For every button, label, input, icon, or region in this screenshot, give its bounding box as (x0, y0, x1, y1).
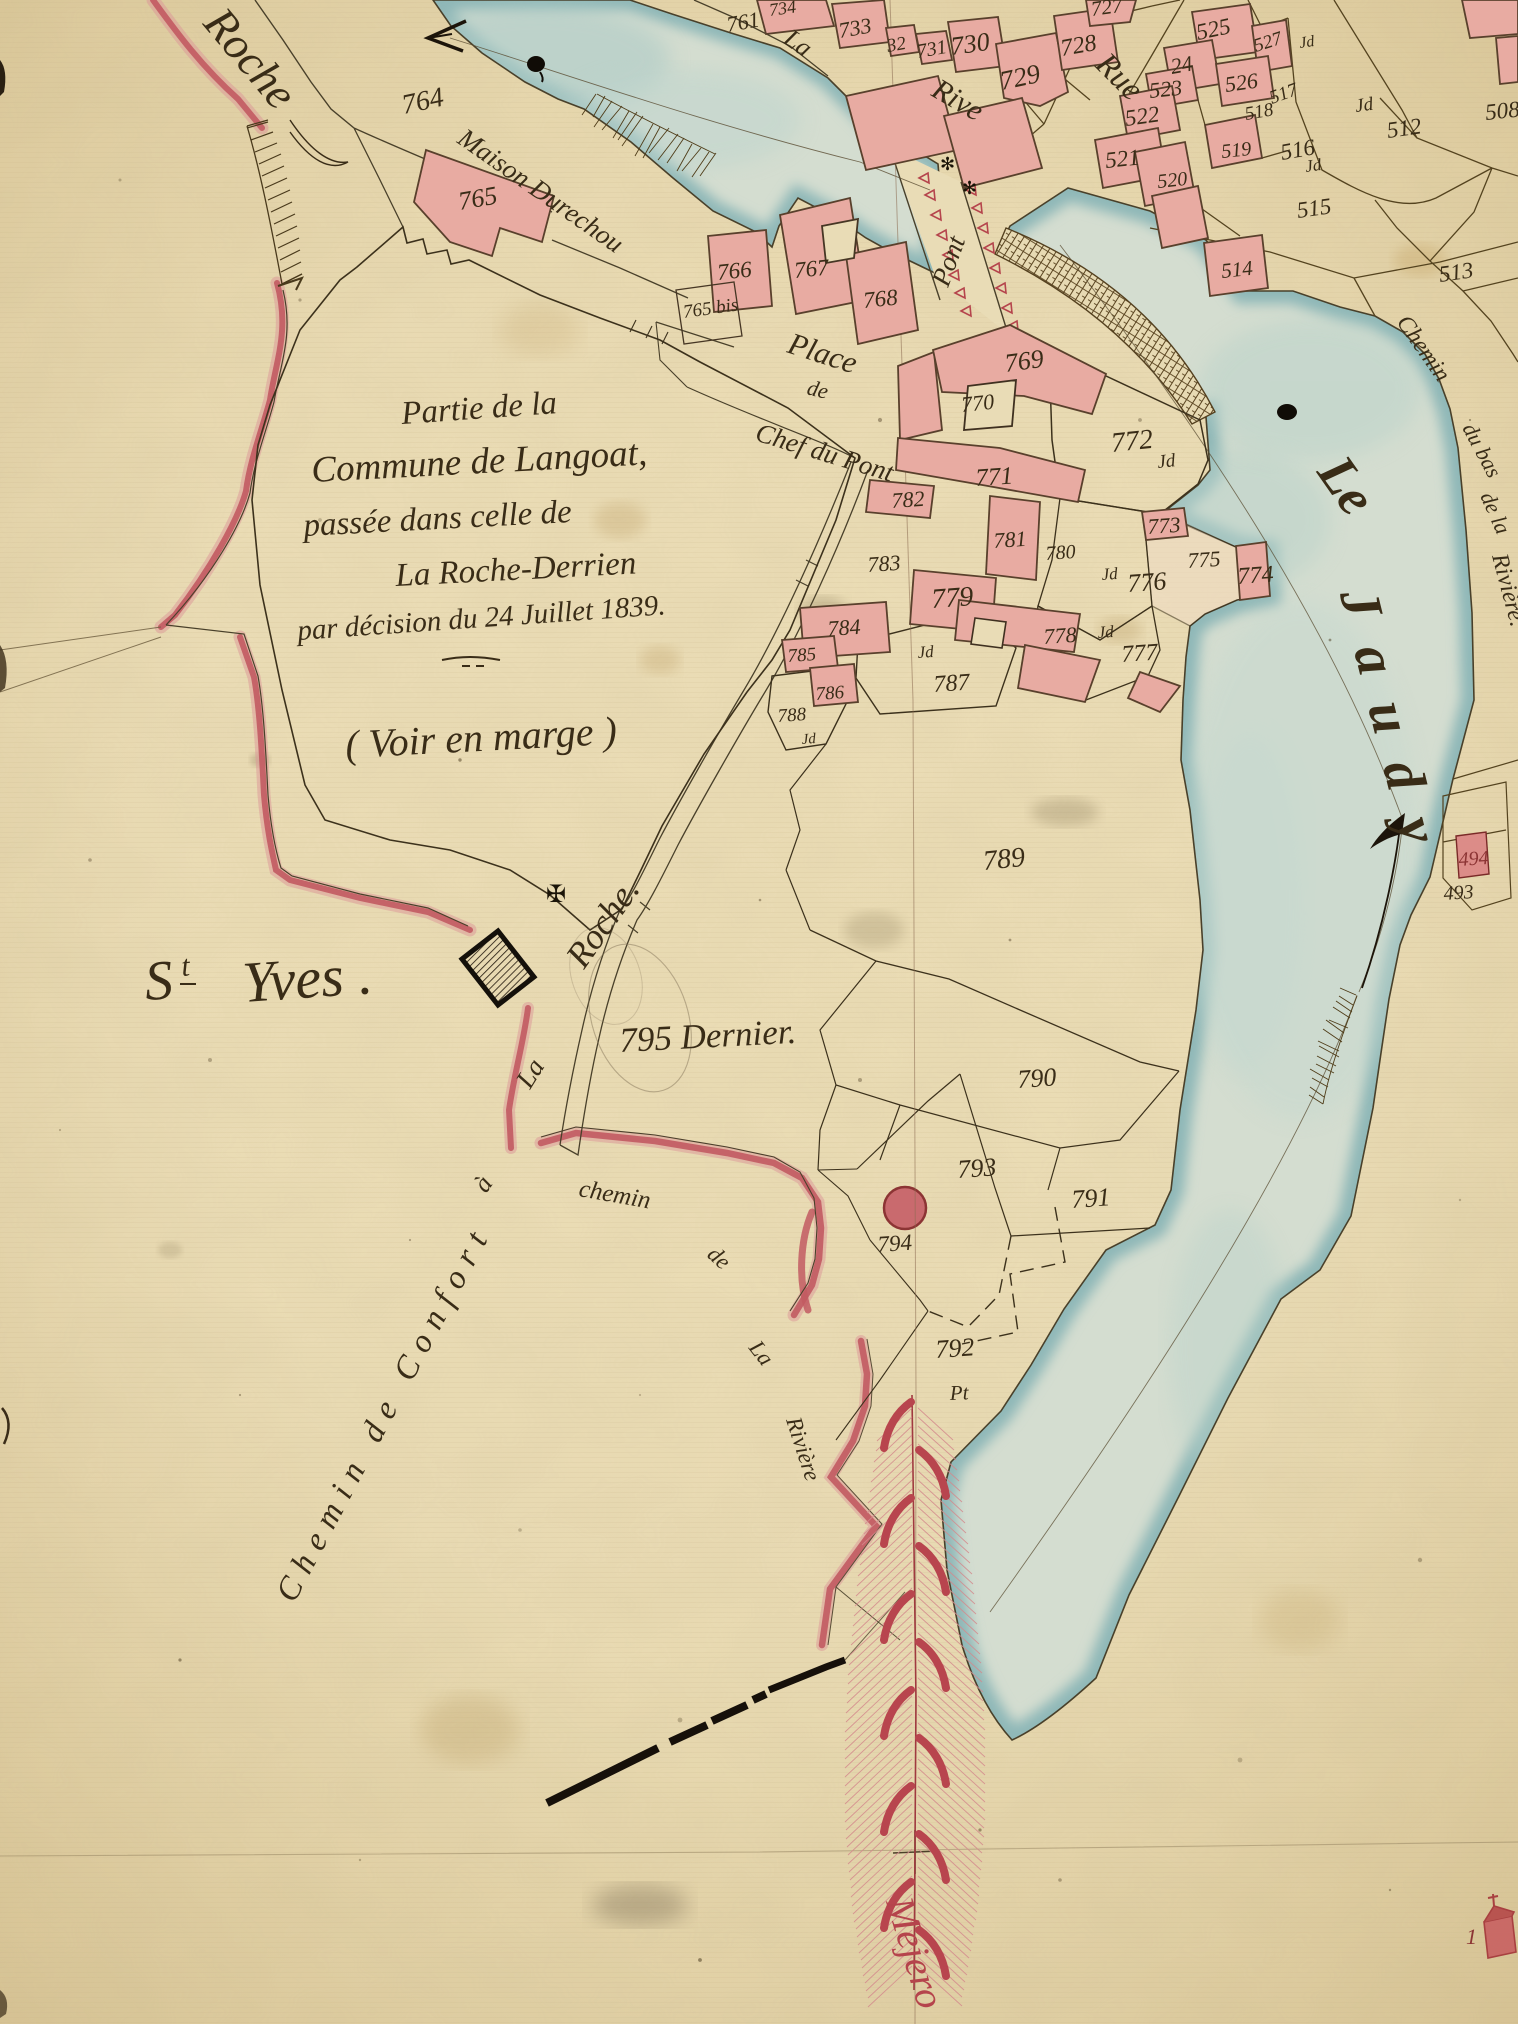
svg-text:513: 513 (1437, 257, 1475, 287)
svg-text:526: 526 (1223, 68, 1259, 97)
svg-text:775: 775 (1187, 546, 1222, 573)
svg-text:768: 768 (862, 284, 899, 313)
svg-text:514: 514 (1220, 256, 1254, 283)
svg-text:Pt: Pt (948, 1380, 970, 1405)
svg-text:Yves .: Yves . (240, 941, 374, 1015)
svg-text:Jd: Jd (1304, 155, 1323, 176)
svg-text:508: 508 (1484, 96, 1518, 125)
svg-text:793: 793 (956, 1152, 997, 1184)
svg-text:519: 519 (1220, 138, 1252, 163)
svg-text:512: 512 (1385, 113, 1423, 143)
svg-text:1: 1 (1466, 1924, 1477, 1949)
svg-text:774: 774 (1237, 562, 1275, 590)
svg-text:781: 781 (993, 526, 1028, 553)
svg-text:787: 787 (933, 669, 972, 698)
svg-text:✻: ✻ (962, 178, 977, 198)
svg-text:521: 521 (1104, 145, 1141, 173)
svg-text:Jd: Jd (1101, 564, 1119, 584)
svg-text:777: 777 (1121, 639, 1160, 668)
svg-text:493: 493 (1443, 881, 1474, 905)
svg-text:771: 771 (975, 462, 1014, 492)
svg-text:784: 784 (827, 614, 862, 641)
svg-text:766: 766 (716, 256, 753, 285)
svg-text:783: 783 (867, 550, 902, 577)
svg-text:773: 773 (1147, 512, 1182, 539)
svg-text:Jd: Jd (1354, 94, 1375, 117)
svg-text:523: 523 (1148, 75, 1183, 103)
svg-text:Jd: Jd (1097, 622, 1115, 642)
svg-text:769: 769 (1003, 344, 1046, 378)
svg-text:767: 767 (793, 254, 831, 283)
svg-text:785: 785 (787, 644, 817, 667)
svg-text:522: 522 (1123, 101, 1161, 131)
svg-text:788: 788 (777, 704, 807, 727)
svg-text:778: 778 (1043, 622, 1078, 649)
svg-text:32: 32 (884, 33, 908, 57)
svg-text:791: 791 (1070, 1182, 1111, 1214)
svg-text:786: 786 (815, 682, 845, 705)
svg-text:792: 792 (934, 1332, 975, 1364)
svg-text:772: 772 (1109, 424, 1154, 459)
svg-text:794: 794 (877, 1230, 913, 1257)
svg-text:515: 515 (1295, 193, 1333, 223)
svg-text:782: 782 (891, 486, 926, 513)
svg-text:789: 789 (981, 842, 1026, 877)
svg-text:Jd: Jd (801, 731, 817, 748)
svg-text:Jd: Jd (917, 642, 935, 662)
svg-text:776: 776 (1126, 566, 1167, 598)
svg-text:✻: ✻ (940, 154, 955, 174)
svg-text:Jd: Jd (1156, 450, 1177, 473)
svg-text:790: 790 (1016, 1062, 1057, 1094)
svg-text:S: S (143, 949, 175, 1013)
svg-text:520: 520 (1156, 168, 1188, 193)
svg-text:779: 779 (930, 581, 974, 615)
svg-text:494: 494 (1458, 847, 1489, 871)
svg-text:780: 780 (1045, 541, 1076, 565)
svg-text:✠: ✠ (546, 882, 566, 908)
svg-text:770: 770 (960, 389, 995, 417)
svg-text:730: 730 (949, 27, 992, 61)
